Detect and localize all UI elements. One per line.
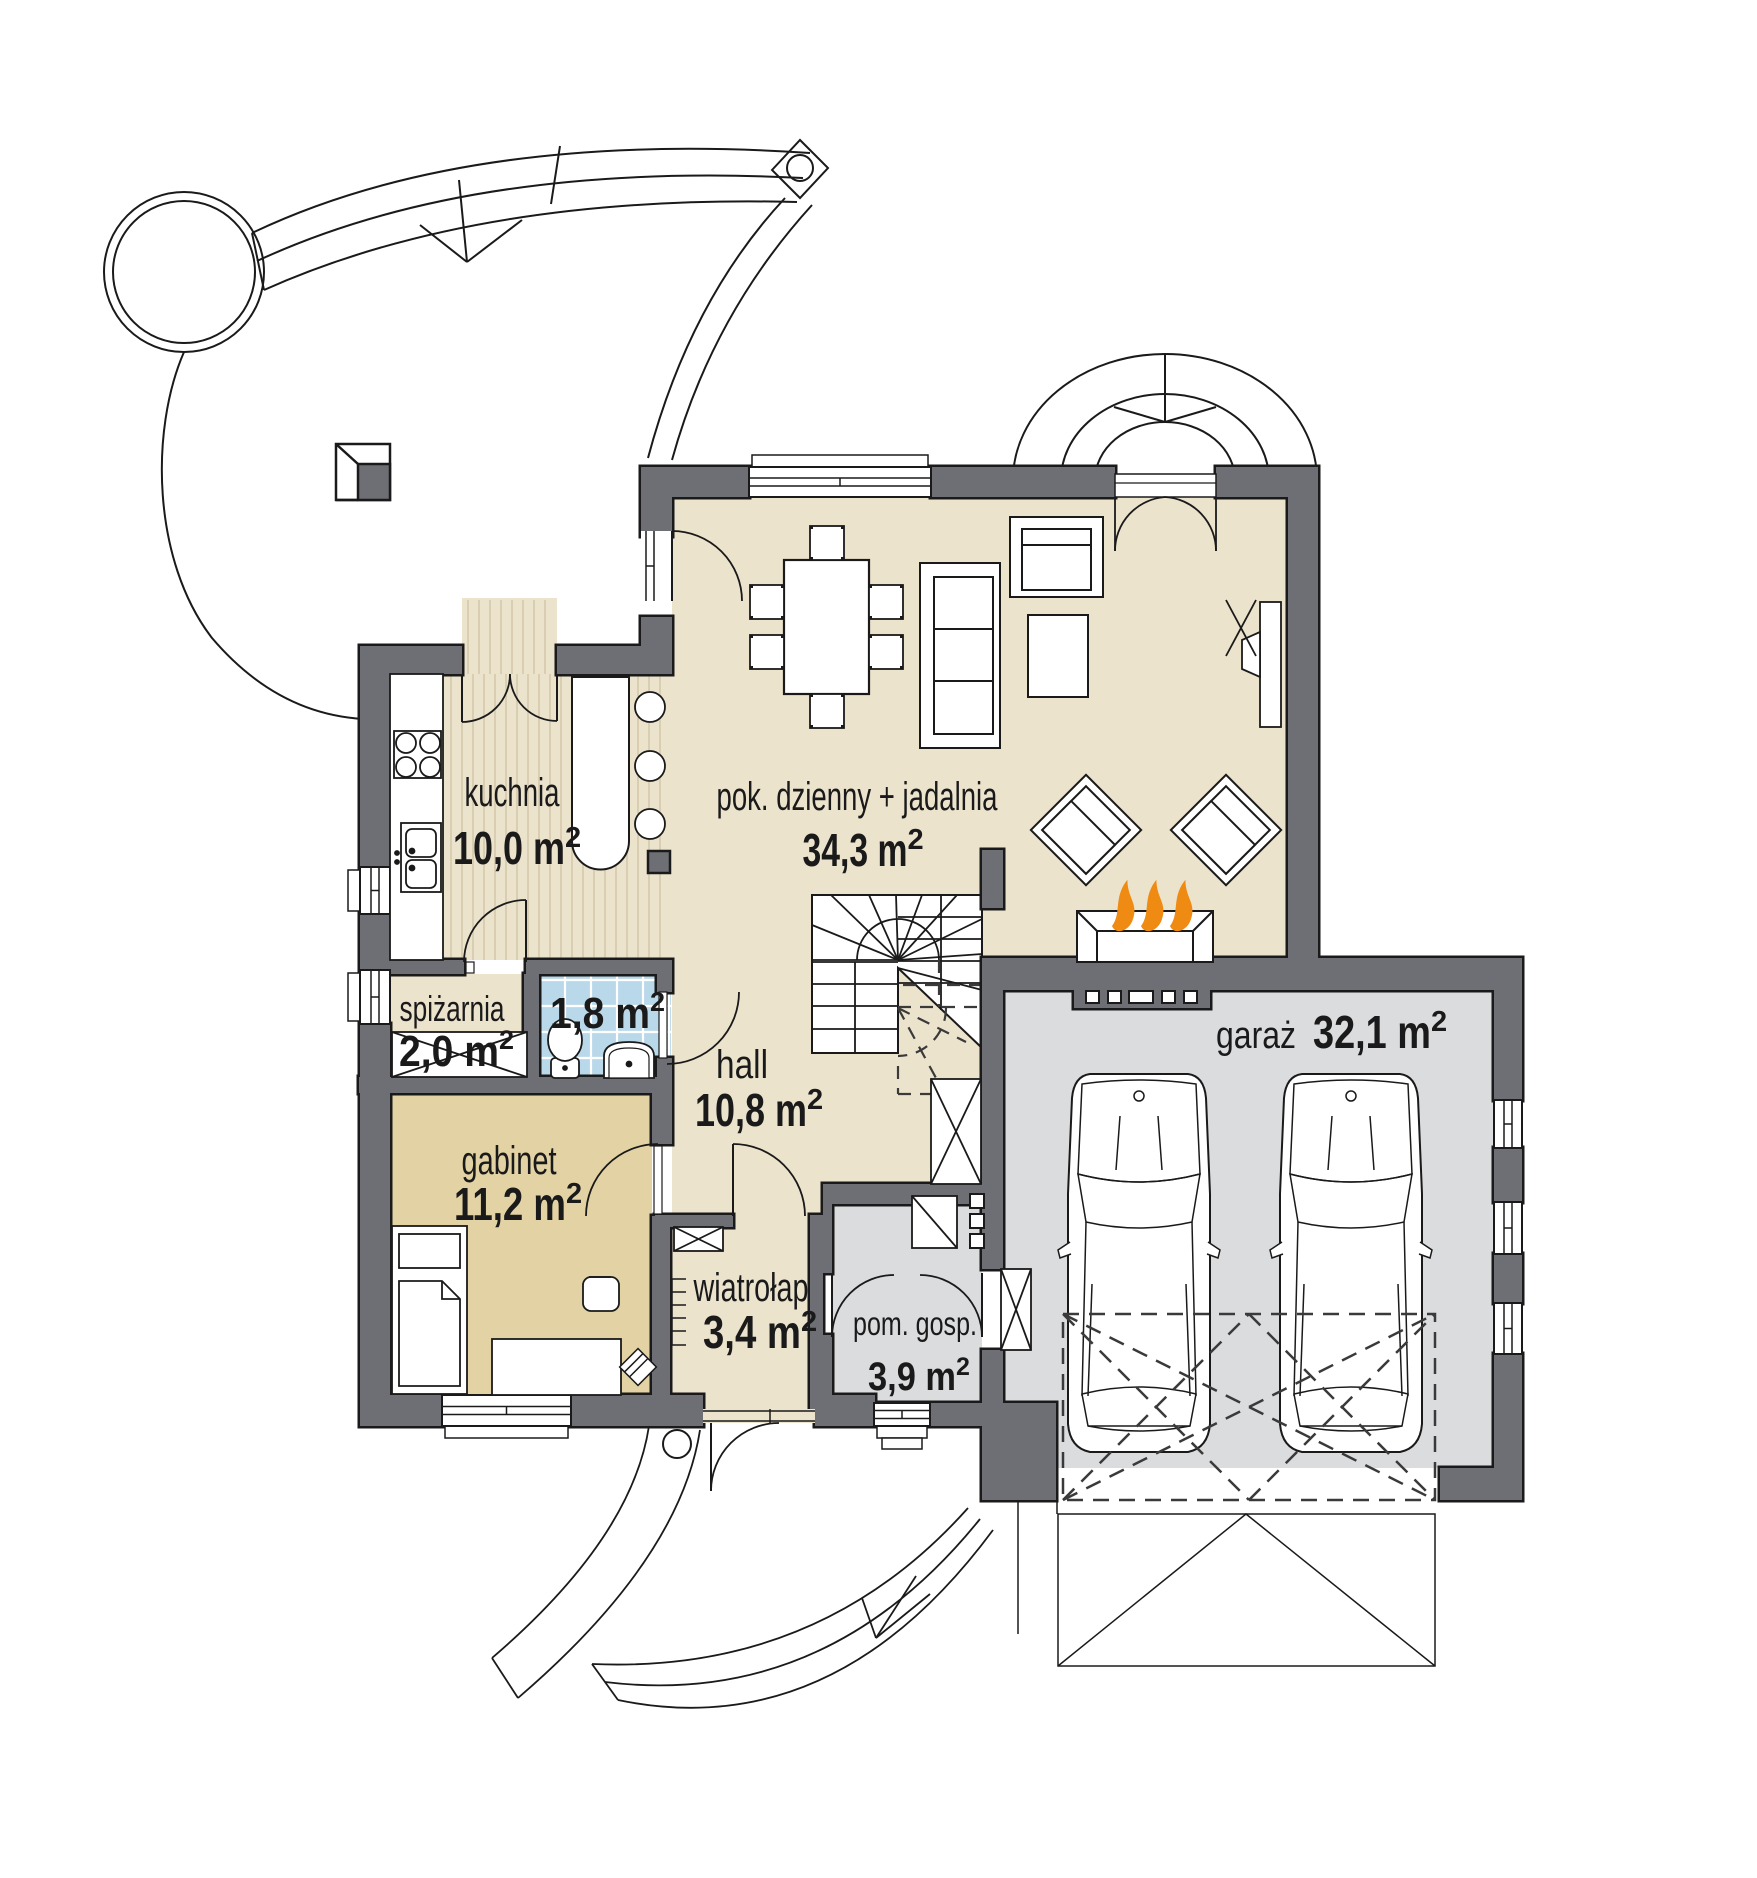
svg-text:pok. dzienny + jadalnia: pok. dzienny + jadalnia xyxy=(717,775,999,819)
svg-text:3,9 m: 3,9 m xyxy=(868,1355,956,1399)
svg-text:34,3 m: 34,3 m xyxy=(803,824,908,876)
svg-text:32,1 m: 32,1 m xyxy=(1313,1006,1431,1058)
svg-text:kuchnia: kuchnia xyxy=(465,771,561,815)
svg-text:spiżarnia: spiżarnia xyxy=(400,988,506,1029)
svg-text:3,4 m: 3,4 m xyxy=(703,1306,801,1358)
svg-text:2: 2 xyxy=(801,1306,817,1338)
svg-text:1,8 m: 1,8 m xyxy=(550,989,650,1038)
svg-text:hall: hall xyxy=(716,1043,768,1087)
svg-text:garaż: garaż xyxy=(1216,1015,1296,1057)
svg-text:10,0 m: 10,0 m xyxy=(453,822,565,874)
svg-text:gabinet: gabinet xyxy=(462,1139,557,1183)
svg-text:2: 2 xyxy=(565,822,581,854)
svg-text:2: 2 xyxy=(499,1025,514,1055)
svg-text:2: 2 xyxy=(1431,1006,1447,1038)
svg-text:wiatrołap: wiatrołap xyxy=(693,1266,809,1310)
svg-text:2: 2 xyxy=(650,987,665,1017)
svg-text:2: 2 xyxy=(566,1178,582,1210)
svg-text:pom. gosp.: pom. gosp. xyxy=(853,1305,977,1342)
svg-text:2: 2 xyxy=(908,824,924,856)
svg-text:2,0 m: 2,0 m xyxy=(399,1027,499,1076)
svg-text:10,8 m: 10,8 m xyxy=(695,1084,807,1136)
svg-text:11,2 m: 11,2 m xyxy=(454,1178,566,1230)
svg-text:2: 2 xyxy=(956,1353,970,1381)
svg-text:2: 2 xyxy=(807,1084,823,1116)
